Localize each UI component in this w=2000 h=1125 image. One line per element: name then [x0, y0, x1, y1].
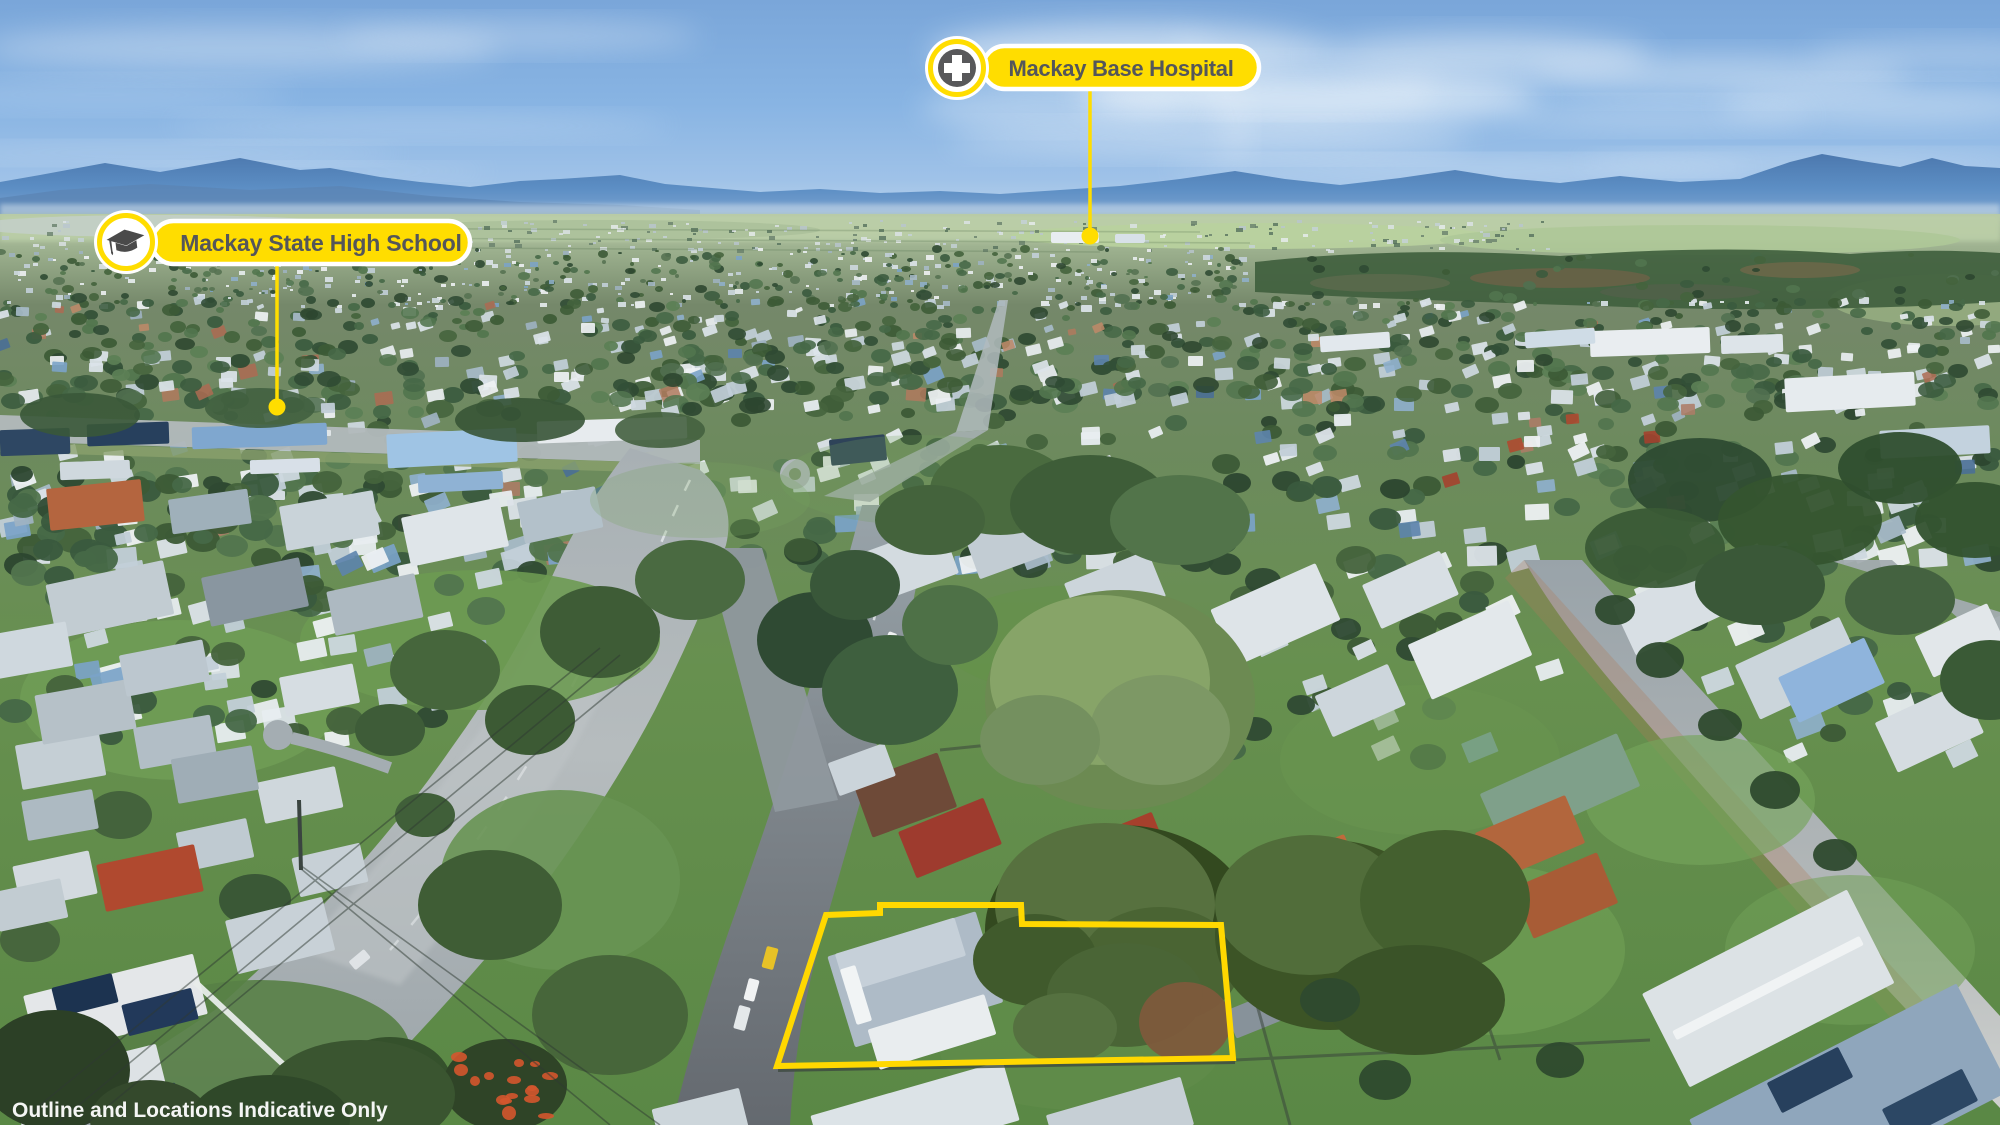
svg-text:Mackay Base Hospital: Mackay Base Hospital [1008, 56, 1233, 81]
svg-text:Mackay State High School: Mackay State High School [180, 230, 462, 256]
svg-text:Outline and Locations Indicati: Outline and Locations Indicative Only [12, 1099, 388, 1122]
